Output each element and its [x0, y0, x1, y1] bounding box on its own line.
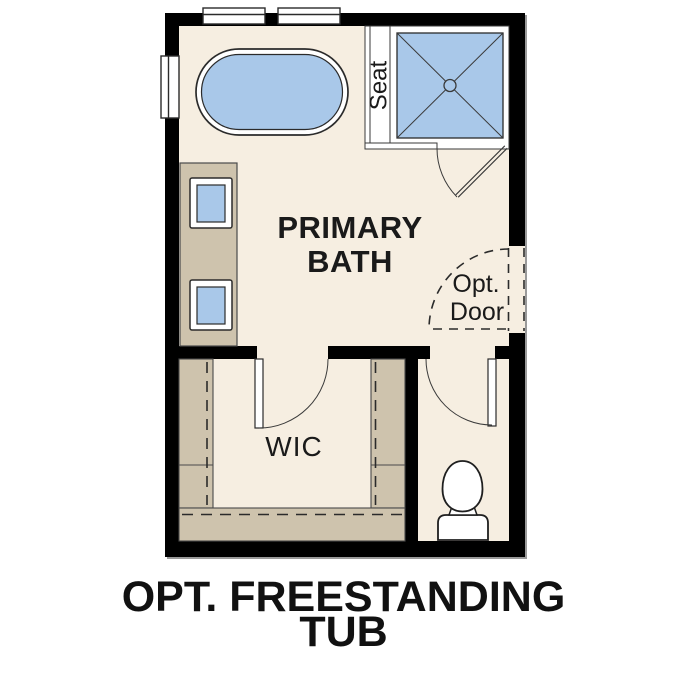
- toilet-door-leaf: [488, 359, 496, 426]
- wic-shelf-bottom: [179, 508, 405, 541]
- primary-bath-label-line1: PRIMARY: [277, 210, 422, 245]
- sink-top: [190, 178, 232, 228]
- shower-curb: [365, 143, 437, 149]
- svg-text:Opt.: Opt.: [452, 270, 499, 298]
- wic-door-leaf: [255, 359, 263, 428]
- opt-door-label: Opt. Door: [450, 270, 504, 326]
- vanity: [180, 163, 237, 346]
- svg-text:Door: Door: [450, 298, 504, 326]
- window-top-left: [203, 8, 265, 24]
- shower-pan: [397, 33, 503, 138]
- floorplan-page: Seat Opt. Door: [0, 0, 687, 687]
- sink-bottom: [190, 280, 232, 330]
- opt-door-wall-gap: [509, 246, 525, 333]
- plan-caption: OPT. FREESTANDING TUB: [84, 580, 604, 650]
- tub-basin: [202, 55, 343, 130]
- wic-shelf-left: [179, 359, 213, 508]
- freestanding-tub: [196, 49, 348, 135]
- toilet-door-opening: [430, 346, 495, 359]
- toilet-bowl: [443, 461, 483, 512]
- shower-seat-label: Seat: [365, 60, 392, 110]
- toilet-tank: [438, 515, 488, 540]
- wic-label: WIC: [265, 431, 322, 462]
- primary-bath-label-line2: BATH: [307, 244, 393, 279]
- window-top-right: [278, 8, 340, 24]
- window-left: [161, 56, 179, 118]
- wic-door-opening: [257, 346, 328, 359]
- shower-drain: [444, 80, 456, 92]
